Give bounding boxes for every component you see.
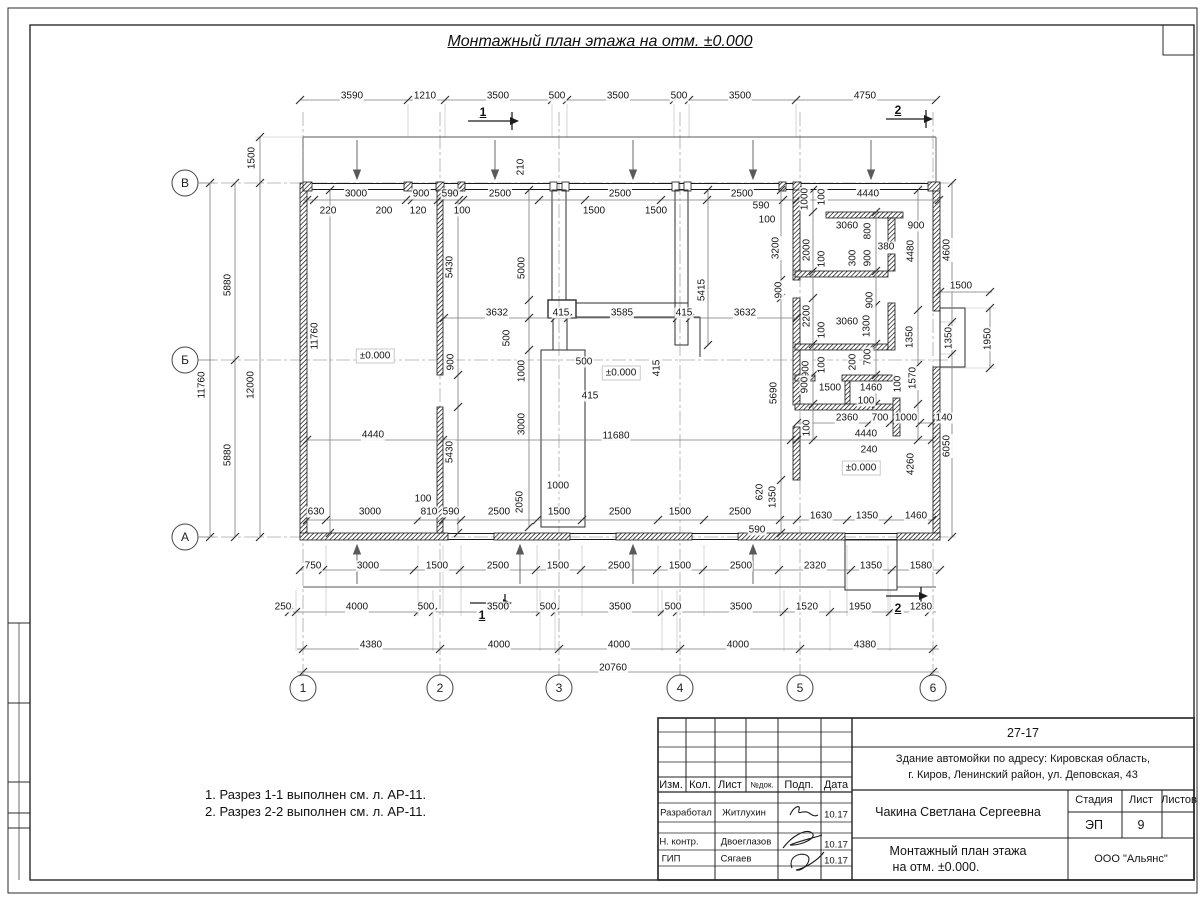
page-title: Монтажный план этажа на отм. ±0.000 <box>0 33 1200 51</box>
plan-drawing <box>0 0 1200 900</box>
shafts-and-pit <box>541 190 965 590</box>
canopy-outline <box>303 137 936 587</box>
sheet-frame <box>8 8 1197 893</box>
notes: 1. Разрез 1-1 выполнен см. л. АР-11. 2. … <box>205 786 426 820</box>
walls <box>300 182 940 540</box>
note-line: 2. Разрез 2-2 выполнен см. л. АР-11. <box>205 803 426 820</box>
note-line: 1. Разрез 1-1 выполнен см. л. АР-11. <box>205 786 426 803</box>
drawing-sheet: Монтажный план этажа на отм. ±0.000 1. Р… <box>0 0 1200 900</box>
